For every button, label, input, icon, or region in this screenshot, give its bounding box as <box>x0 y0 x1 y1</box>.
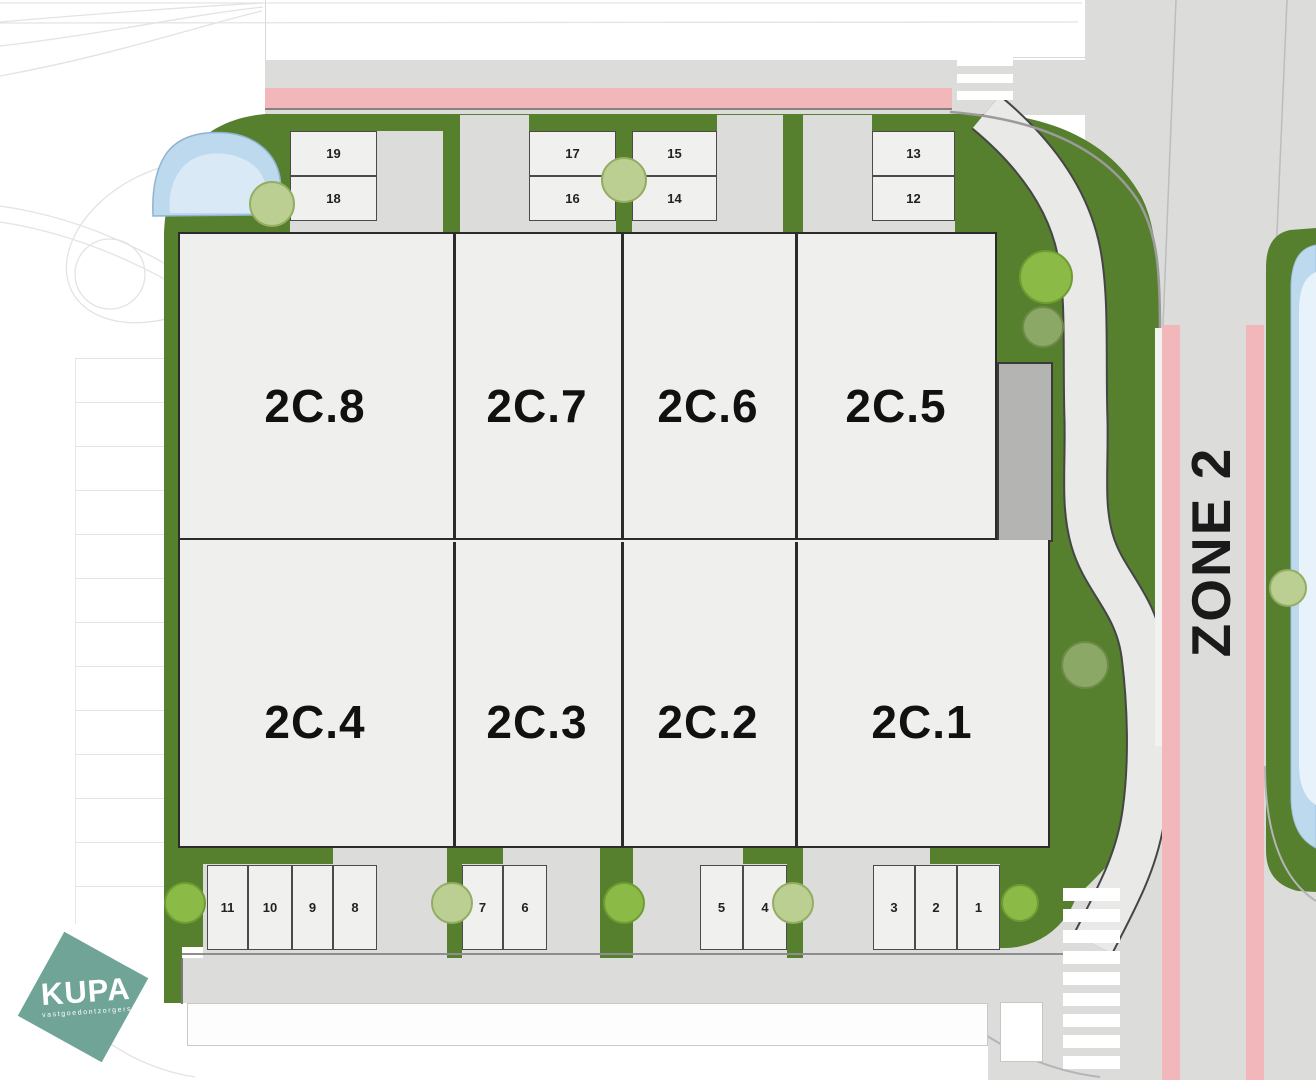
parking-stall-12: 12 <box>872 176 955 221</box>
tree-icon <box>249 181 295 227</box>
top-road-left-edge <box>265 0 266 60</box>
unit-divider <box>453 542 456 846</box>
tree-icon <box>164 882 206 924</box>
parking-stall-13: 13 <box>872 131 955 176</box>
edge-path-strip <box>1155 328 1162 746</box>
driveway <box>803 115 872 232</box>
parking-stall-8: 8 <box>333 865 377 950</box>
zone2-bike-lane-left <box>1162 325 1180 1080</box>
tree-icon <box>1001 884 1039 922</box>
tree-icon <box>603 882 645 924</box>
unit-2C4: 2C.4 <box>230 698 400 746</box>
parking-stall-11: 11 <box>207 865 248 950</box>
verge <box>930 848 1000 864</box>
bottom-sidewalk <box>187 1003 988 1046</box>
crosswalk-bottom <box>1063 888 1120 1074</box>
top-road-edge-line <box>265 108 952 110</box>
parking-stall-2: 2 <box>915 865 957 950</box>
building-bottom-row <box>178 540 1050 848</box>
top-bike-path <box>265 88 952 108</box>
kupa-brand: KUPA <box>40 973 131 1010</box>
driveway <box>460 115 529 232</box>
parking-stall-3: 3 <box>873 865 915 950</box>
unit-2C1: 2C.1 <box>837 698 1007 746</box>
unit-divider <box>621 542 624 846</box>
parking-stall-9: 9 <box>292 865 333 950</box>
driveway <box>529 221 616 232</box>
parking-stall-19: 19 <box>290 131 377 176</box>
verge <box>203 848 333 864</box>
crossing-refuge <box>1000 1002 1043 1062</box>
annex-dock <box>997 362 1053 542</box>
site-plan: 19 18 17 16 15 14 13 12 11 10 9 8 7 6 5 … <box>0 0 1316 1080</box>
tree-icon <box>772 882 814 924</box>
unit-divider <box>795 234 798 538</box>
bottom-road <box>182 958 1085 1003</box>
tree-icon <box>1019 250 1073 304</box>
unit-2C8: 2C.8 <box>230 382 400 430</box>
zone-label: ZONE 2 <box>1181 377 1241 727</box>
bottom-road-edge-line <box>182 953 1105 955</box>
driveway <box>872 221 955 232</box>
unit-divider <box>795 542 798 846</box>
tree-icon <box>1022 306 1064 348</box>
verge <box>447 848 503 864</box>
unit-2C3: 2C.3 <box>452 698 622 746</box>
driveway <box>632 221 717 232</box>
driveway <box>377 131 443 232</box>
unit-2C5: 2C.5 <box>811 382 981 430</box>
unit-2C7: 2C.7 <box>452 382 622 430</box>
parking-stall-10: 10 <box>248 865 292 950</box>
tree-icon <box>601 157 647 203</box>
adjacent-parking-sketch <box>75 358 167 924</box>
tree-icon <box>1269 569 1307 607</box>
tree-icon <box>1061 641 1109 689</box>
tree-icon <box>431 882 473 924</box>
bottom-road-left-edge <box>181 958 183 1004</box>
parking-stall-6: 6 <box>503 865 547 950</box>
parking-stall-5: 5 <box>700 865 743 950</box>
crosswalk-top <box>957 57 1013 103</box>
parking-stall-1: 1 <box>957 865 1000 950</box>
unit-2C2: 2C.2 <box>623 698 793 746</box>
top-sidewalk-edge <box>1013 57 1085 58</box>
kupa-logo-text: KUPA vastgoedontzorgers <box>13 961 159 1031</box>
driveway <box>717 115 783 232</box>
parking-stall-18: 18 <box>290 176 377 221</box>
unit-2C6: 2C.6 <box>623 382 793 430</box>
zone2-bike-lane-right <box>1246 325 1264 1080</box>
